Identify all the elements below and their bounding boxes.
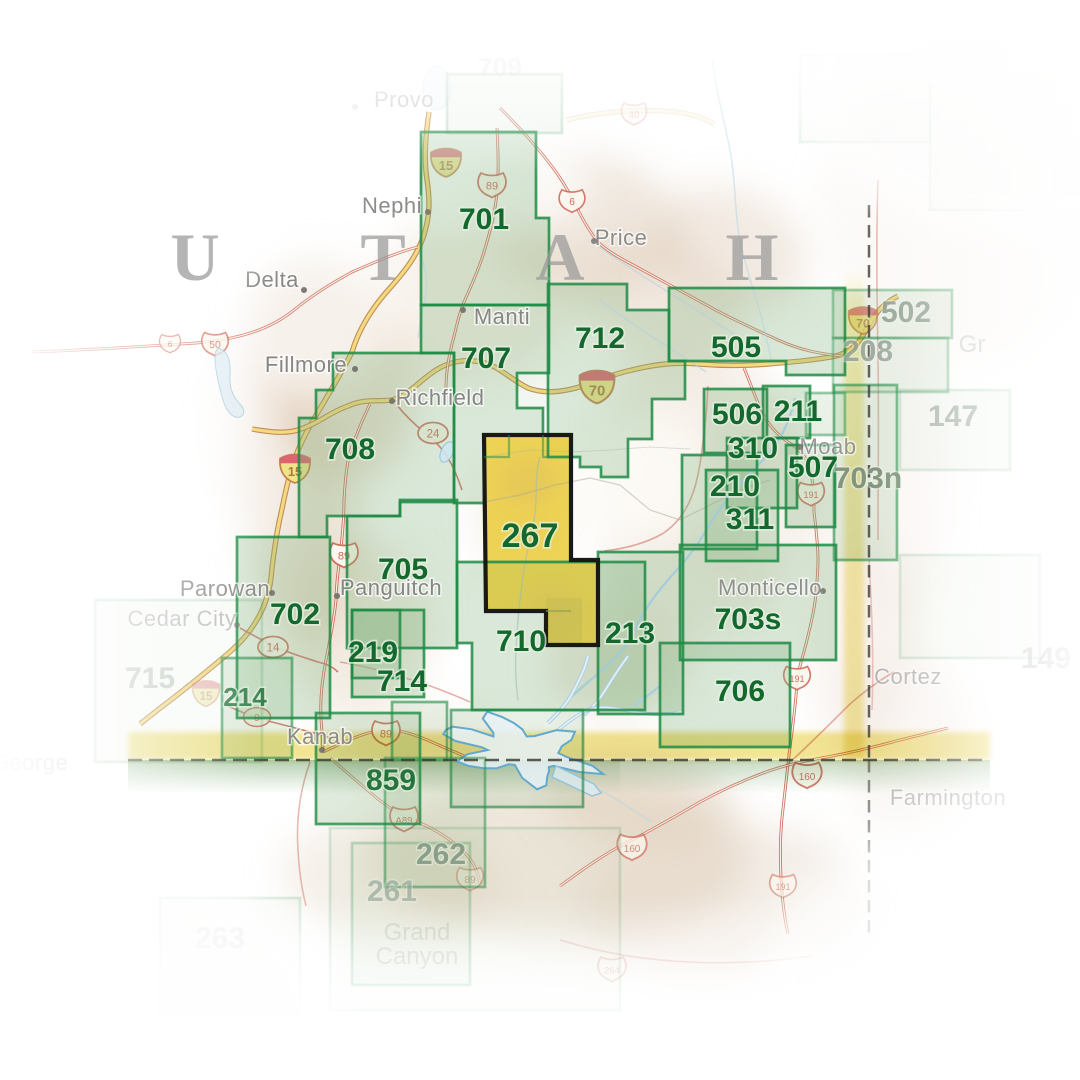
svg-text:710: 710 [496,625,546,658]
svg-text:191: 191 [775,882,790,892]
svg-text:T: T [360,219,405,295]
svg-text:Price: Price [595,225,648,250]
svg-text:859: 859 [366,764,416,797]
svg-text:211: 211 [774,395,822,428]
svg-text:714: 714 [377,665,427,698]
svg-text:267: 267 [502,517,559,555]
svg-text:Kanab: Kanab [287,724,353,749]
svg-text:705: 705 [378,553,428,586]
svg-text:160: 160 [624,844,641,855]
svg-text:702: 702 [270,598,320,631]
svg-text:262: 262 [416,838,466,871]
svg-text:Nephi: Nephi [362,193,422,218]
svg-text:506: 506 [712,398,762,431]
svg-text:311: 311 [726,503,774,536]
svg-text:213: 213 [605,617,655,650]
svg-text:Manti: Manti [474,304,530,329]
svg-text:712: 712 [575,322,625,355]
svg-text:H: H [726,219,779,295]
svg-text:A: A [535,219,584,295]
svg-text:701: 701 [459,203,509,236]
svg-text:708: 708 [325,433,375,466]
svg-text:Richfield: Richfield [396,385,485,410]
svg-text:Monticello: Monticello [718,575,822,600]
svg-text:210: 210 [710,470,760,503]
svg-text:Fillmore: Fillmore [265,352,347,377]
svg-text:507: 507 [788,451,838,484]
svg-text:707: 707 [461,342,511,375]
svg-text:191: 191 [789,674,804,684]
svg-text:703s: 703s [715,603,782,636]
svg-text:6: 6 [569,197,575,208]
svg-text:505: 505 [711,331,761,364]
svg-text:310: 310 [728,432,778,465]
svg-text:706: 706 [715,675,765,708]
svg-text:U: U [170,219,219,295]
